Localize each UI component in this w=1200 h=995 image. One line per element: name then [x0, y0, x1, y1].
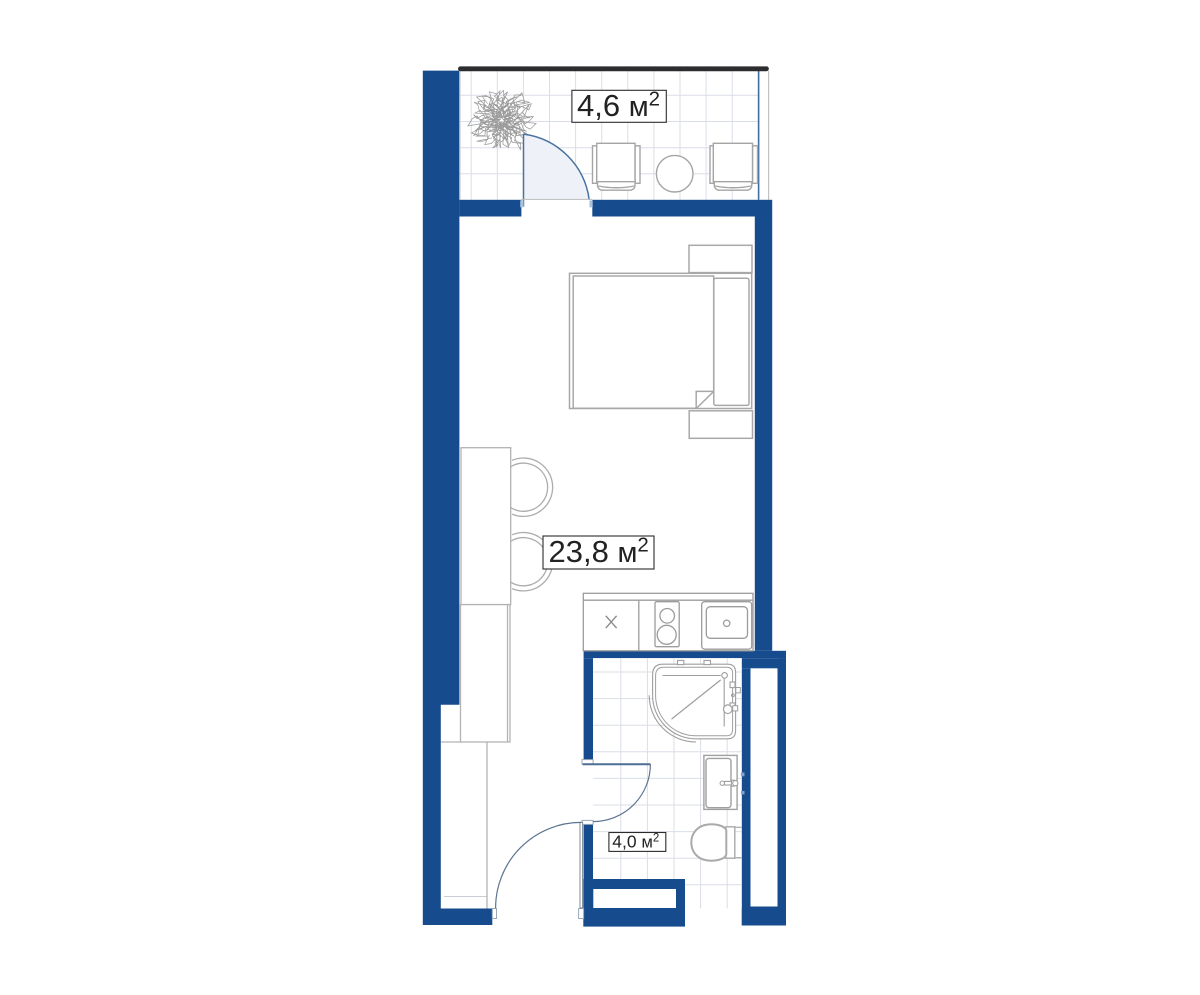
svg-text:4,0 м2: 4,0 м2 — [612, 832, 659, 852]
svg-text:4,6 м2: 4,6 м2 — [577, 88, 660, 124]
svg-text:23,8 м2: 23,8 м2 — [549, 534, 649, 570]
